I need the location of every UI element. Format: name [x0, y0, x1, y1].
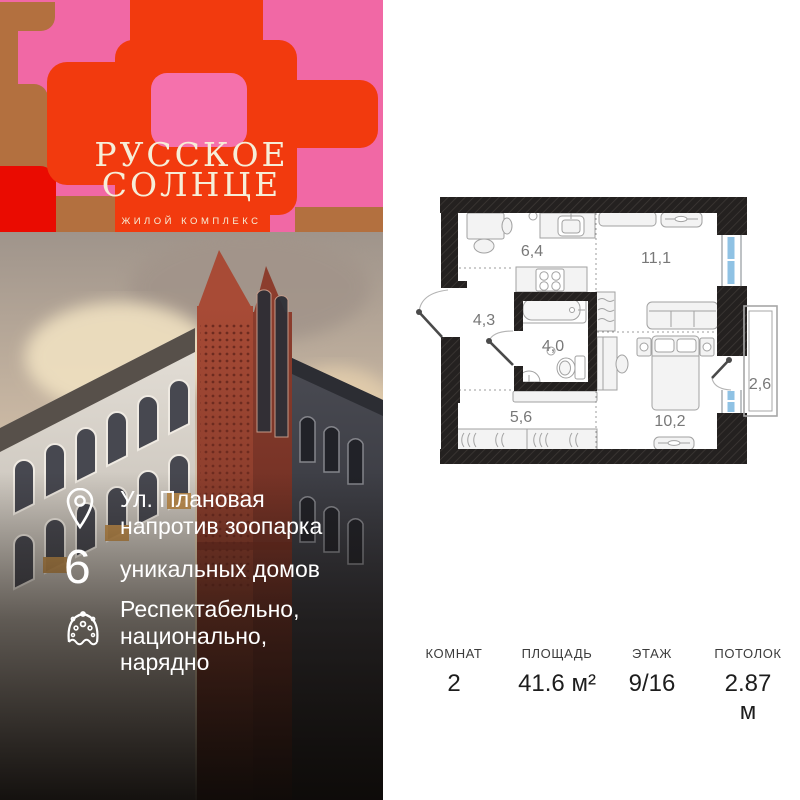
- kitchen-stool: [474, 239, 494, 253]
- bathroom-door: [486, 331, 513, 365]
- apartment-stats: КОМНАТ 2 ПЛОЩАДЬ 41.6 м² ЭТАЖ 9/16 ПОТОЛ…: [383, 646, 800, 716]
- room-label-kitchen: 6,4: [521, 243, 543, 260]
- map-pin-icon: [62, 486, 120, 532]
- floor-plan-drawing: 6,4 11,1 4,3 4,0 5,6 10,2 2,6: [398, 180, 800, 480]
- pillow: [677, 339, 696, 352]
- highlight-style: Респектабельно, национально, нарядно: [62, 596, 300, 676]
- entrance-door: [416, 290, 448, 337]
- photo-highlights: Ул. Плановая напротив зоопарка 6 уникаль…: [0, 232, 383, 800]
- room-label-living: 11,1: [641, 250, 671, 267]
- kitchen-sink-basin: [562, 220, 580, 233]
- sofa: [647, 302, 718, 329]
- balcony-outline: [744, 306, 777, 416]
- balcony-door: [712, 357, 732, 390]
- floor-plan: 6,4 11,1 4,3 4,0 5,6 10,2 2,6: [398, 180, 800, 480]
- pillow: [655, 339, 674, 352]
- left-panel: РУССКОЕ СОЛНЦЕ ЖИЛОЙ КОМПЛЕКС: [0, 0, 383, 800]
- six-numeral: 6: [62, 548, 120, 588]
- toilet-tank: [575, 356, 585, 379]
- kitchen-chair: [502, 218, 512, 234]
- highlight-houses: 6 уникальных домов: [62, 548, 320, 588]
- listing-card: РУССКОЕ СОЛНЦЕ ЖИЛОЙ КОМПЛЕКС: [0, 0, 800, 800]
- brand-wordmark: РУССКОЕ СОЛНЦЕ: [0, 140, 383, 200]
- stat-floor: ЭТАЖ 9/16: [629, 646, 676, 698]
- stat-area: ПЛОЩАДЬ 41.6 м²: [518, 646, 596, 698]
- cabinet: [513, 391, 597, 402]
- highlight-style-text: Респектабельно, национально, нарядно: [120, 596, 300, 676]
- kokoshnik-icon: [62, 596, 120, 650]
- logo-shape-brown: [0, 2, 55, 31]
- tv-console: [599, 212, 656, 226]
- room-label-hallway: 4,3: [473, 312, 495, 329]
- highlight-location: Ул. Плановая напротив зоопарка: [62, 486, 322, 539]
- room-label-bathroom: 4,0: [542, 338, 564, 355]
- highlight-location-text: Ул. Плановая напротив зоопарка: [120, 486, 322, 539]
- bedroom-desk: [597, 337, 617, 390]
- room-label-storage: 5,6: [510, 409, 532, 426]
- stat-rooms: КОМНАТ 2: [426, 646, 483, 698]
- highlight-houses-text: уникальных домов: [120, 548, 320, 583]
- vent-circle: [529, 212, 537, 220]
- brand-logo-block: РУССКОЕ СОЛНЦЕ ЖИЛОЙ КОМПЛЕКС: [0, 0, 383, 232]
- desk-chair: [616, 355, 628, 373]
- building-photo: Ул. Плановая напротив зоопарка 6 уникаль…: [0, 232, 383, 800]
- brand-wordmark-line2: СОЛНЦЕ: [0, 170, 383, 200]
- room-label-balcony: 2,6: [749, 376, 771, 393]
- stat-ceiling: ПОТОЛОК 2.87 м: [714, 646, 781, 726]
- brand-tagline: ЖИЛОЙ КОМПЛЕКС: [0, 216, 383, 227]
- room-label-bedroom: 10,2: [654, 413, 685, 430]
- kitchen-desk: [467, 213, 504, 239]
